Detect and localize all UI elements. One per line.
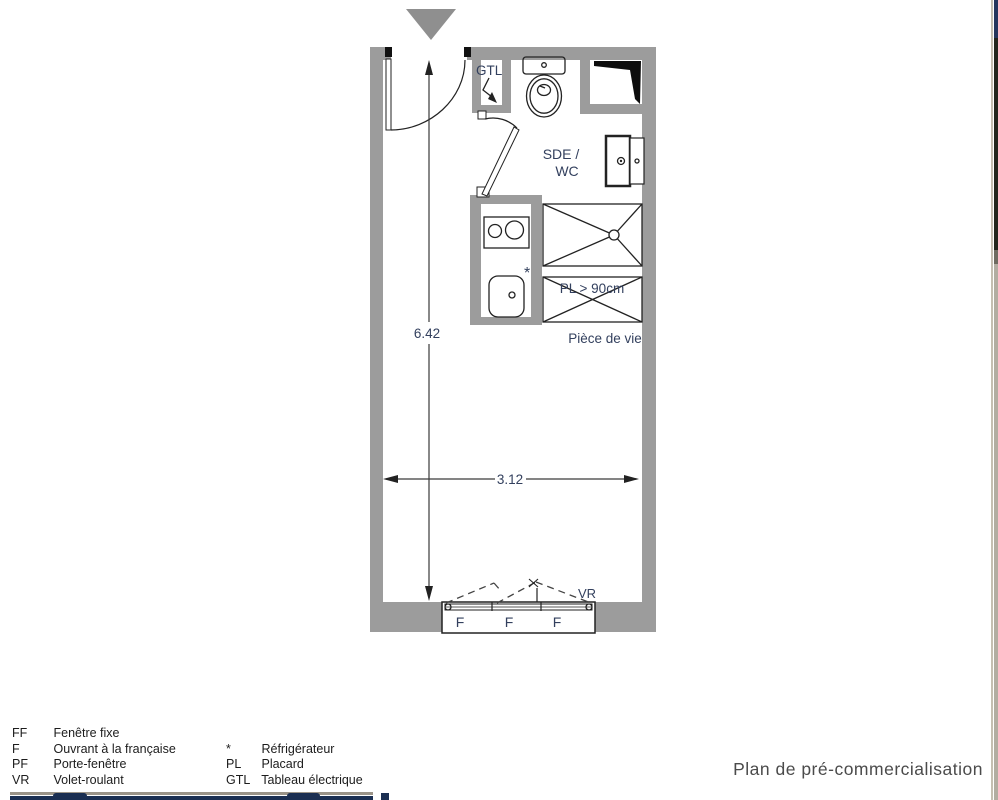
dimension-width-value: 3.12 bbox=[497, 472, 523, 487]
cutoff-navy-square bbox=[381, 793, 389, 800]
floor-plan-page: GTL SDE / WC bbox=[0, 0, 998, 800]
window-panel-label-1: F bbox=[456, 614, 465, 630]
adjacent-page-sliver bbox=[994, 0, 998, 800]
legend-abbr: VR bbox=[12, 773, 50, 789]
entrance-marker-triangle bbox=[406, 9, 456, 40]
floor-plan-drawing: GTL SDE / WC bbox=[0, 0, 998, 800]
dimension-width: 3.12 bbox=[383, 472, 639, 487]
kitchen-hob bbox=[484, 217, 529, 248]
room-label-sde-wc-1: SDE / bbox=[543, 146, 580, 162]
gtl-arrow bbox=[483, 78, 492, 97]
legend-label: Volet-roulant bbox=[53, 773, 123, 787]
door-frame-notch-right bbox=[464, 47, 471, 57]
bathroom-door bbox=[477, 111, 519, 197]
duct-shaft-mark bbox=[594, 61, 641, 104]
toilet bbox=[523, 57, 565, 117]
legend-abbr: * bbox=[226, 742, 258, 758]
window-panel-label-3: F bbox=[553, 614, 562, 630]
placard-size-label: PL > 90cm bbox=[560, 281, 624, 296]
legend-row: * Réfrigérateur bbox=[226, 742, 363, 758]
window-triple: F F F VR bbox=[442, 579, 596, 633]
dimension-height: 6.42 bbox=[414, 60, 440, 601]
room-label-piece-de-vie: Pièce de vie bbox=[568, 331, 642, 346]
legend-label: Réfrigérateur bbox=[261, 742, 334, 756]
legend-label: Porte-fenêtre bbox=[53, 757, 126, 771]
legend-row: FF Fenêtre fixe bbox=[12, 726, 412, 742]
page-edge-line bbox=[991, 0, 993, 800]
legend-abbr: PF bbox=[12, 757, 50, 773]
legend-label: Fenêtre fixe bbox=[53, 726, 119, 740]
plan-title: Plan de pré-commercialisation bbox=[733, 759, 983, 780]
fridge-symbol: * bbox=[524, 265, 530, 282]
entrance-door bbox=[386, 59, 465, 130]
legend-label: Tableau électrique bbox=[261, 773, 362, 787]
legend-row: GTL Tableau électrique bbox=[226, 773, 363, 789]
legend-column-2: * Réfrigérateur PL Placard GTL Tableau é… bbox=[226, 742, 363, 789]
vr-label: VR bbox=[578, 586, 596, 601]
gtl-label: GTL bbox=[476, 63, 503, 78]
legend-abbr: GTL bbox=[226, 773, 258, 789]
living-placard: PL > 90cm bbox=[543, 277, 642, 322]
legend-abbr: PL bbox=[226, 757, 258, 773]
legend-abbr: F bbox=[12, 742, 50, 758]
legend-label: Ouvrant à la française bbox=[53, 742, 175, 756]
legend-row: PL Placard bbox=[226, 757, 363, 773]
legend: FF Fenêtre fixe F Ouvrant à la française… bbox=[12, 726, 412, 788]
door-frame-notch-left bbox=[385, 47, 392, 57]
bathroom-closet bbox=[606, 136, 644, 186]
shower-tray bbox=[543, 204, 642, 266]
cutoff-navy-bar bbox=[10, 796, 373, 800]
legend-abbr: FF bbox=[12, 726, 50, 742]
kitchen-sink bbox=[489, 276, 524, 317]
dimension-height-value: 6.42 bbox=[414, 326, 440, 341]
legend-label: Placard bbox=[261, 757, 303, 771]
window-panel-label-2: F bbox=[505, 614, 514, 630]
room-label-sde-wc-2: WC bbox=[555, 163, 578, 179]
